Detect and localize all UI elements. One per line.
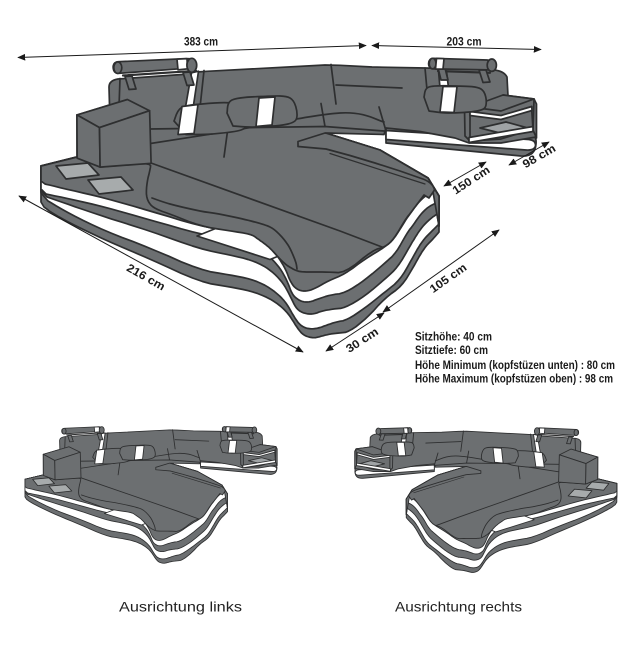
svg-text:Sitztiefe: 60 cm: Sitztiefe: 60 cm xyxy=(415,345,488,357)
svg-text:Höhe Maximum (kopfstüzen oben): Höhe Maximum (kopfstüzen oben) : 98 cm xyxy=(415,374,613,386)
svg-text:203 cm: 203 cm xyxy=(447,37,482,49)
svg-text:Ausrichtung rechts: Ausrichtung rechts xyxy=(395,599,522,615)
svg-text:105 cm: 105 cm xyxy=(428,262,469,296)
svg-text:150 cm: 150 cm xyxy=(451,164,493,197)
svg-text:216 cm: 216 cm xyxy=(124,262,166,293)
svg-text:Höhe Minimum (kopfstüzen unten: Höhe Minimum (kopfstüzen unten) : 80 cm xyxy=(415,360,615,372)
svg-text:383 cm: 383 cm xyxy=(184,37,218,49)
svg-text:Sitzhöhe: 40 cm: Sitzhöhe: 40 cm xyxy=(415,332,492,344)
svg-text:Ausrichtung links: Ausrichtung links xyxy=(119,599,242,615)
